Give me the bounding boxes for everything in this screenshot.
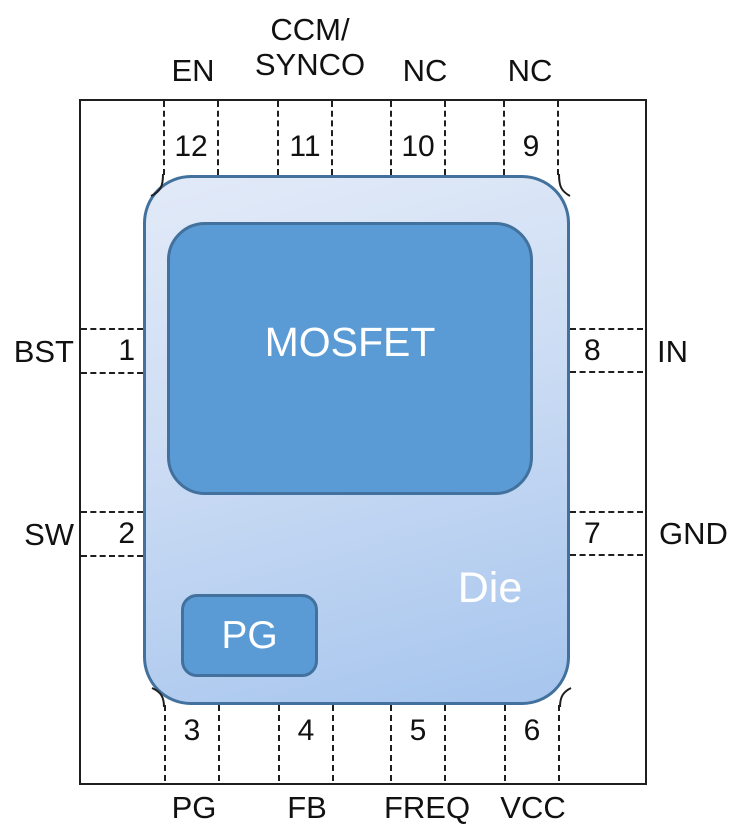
pin-12-function-label: EN — [143, 53, 243, 88]
pin-10-number: 10 — [401, 131, 434, 163]
pin-8-function-label: IN — [657, 334, 736, 369]
pin-9-function-label: NC — [480, 53, 580, 88]
pin-9-number: 9 — [523, 131, 540, 163]
pin-8-number: 8 — [584, 335, 601, 367]
pin-6-box: 6 — [504, 705, 560, 781]
pin-11-number: 11 — [289, 131, 320, 163]
mosfet-label: MOSFET — [250, 319, 450, 366]
pin-1-function-label: BST — [0, 334, 74, 369]
pin-5-number: 5 — [410, 715, 427, 747]
pin-6-function-label: VCC — [483, 790, 583, 825]
pin-2-box: 2 — [81, 511, 143, 557]
pin-7-function-label: GND — [659, 516, 736, 551]
pin-9-box: 9 — [503, 101, 559, 175]
pg-region-label: PG — [221, 614, 277, 658]
pin-11-function-label: CCM/ SYNCO — [248, 12, 372, 82]
die-label: Die — [440, 564, 540, 613]
pin-3-function-label: PG — [144, 790, 244, 825]
pin-4-box: 4 — [278, 705, 334, 781]
pin-7-number: 7 — [584, 518, 601, 550]
pin-10-function-label: NC — [375, 53, 475, 88]
pin-2-function-label: SW — [0, 517, 74, 552]
pin-12-box: 12 — [163, 101, 219, 175]
pin-2-number: 2 — [118, 518, 135, 550]
pin-5-function-label: FREQ — [377, 790, 477, 825]
pg-region: PG — [181, 594, 318, 677]
pin-8-box: 8 — [570, 328, 643, 373]
pin-11-box: 11 — [277, 101, 333, 175]
pin-5-box: 5 — [390, 705, 446, 781]
pin-4-number: 4 — [298, 715, 315, 747]
pin-10-box: 10 — [390, 101, 446, 175]
pin-3-number: 3 — [184, 715, 201, 747]
pin-12-number: 12 — [174, 131, 207, 163]
pin-7-box: 7 — [570, 511, 643, 556]
pinout-diagram: MOSFET Die PG 12 11 10 9 3 4 5 6 1 2 8 7 — [0, 0, 736, 835]
pin-4-function-label: FB — [257, 790, 357, 825]
pin-6-number: 6 — [524, 715, 541, 747]
pin-1-box: 1 — [81, 328, 143, 374]
pin-3-box: 3 — [164, 705, 220, 781]
pin-1-number: 1 — [118, 335, 135, 367]
